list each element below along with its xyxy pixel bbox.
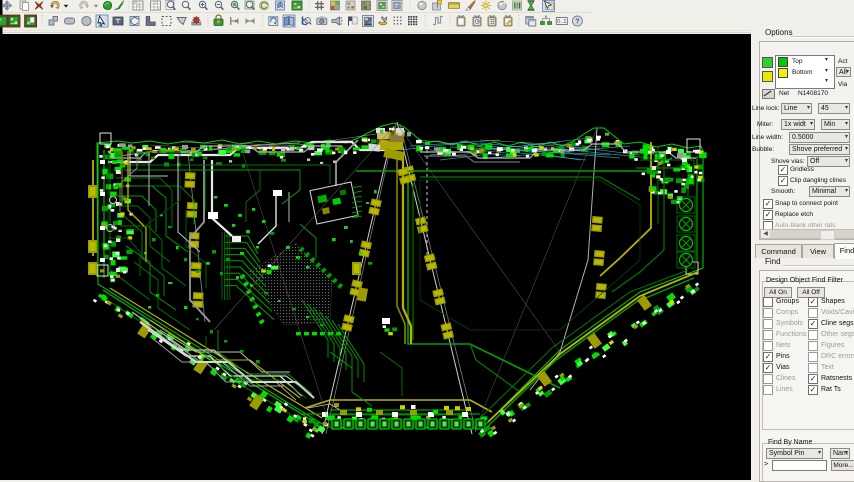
svg-text:0..1: 0..1: [557, 19, 566, 25]
svg-text:?: ?: [575, 17, 580, 26]
